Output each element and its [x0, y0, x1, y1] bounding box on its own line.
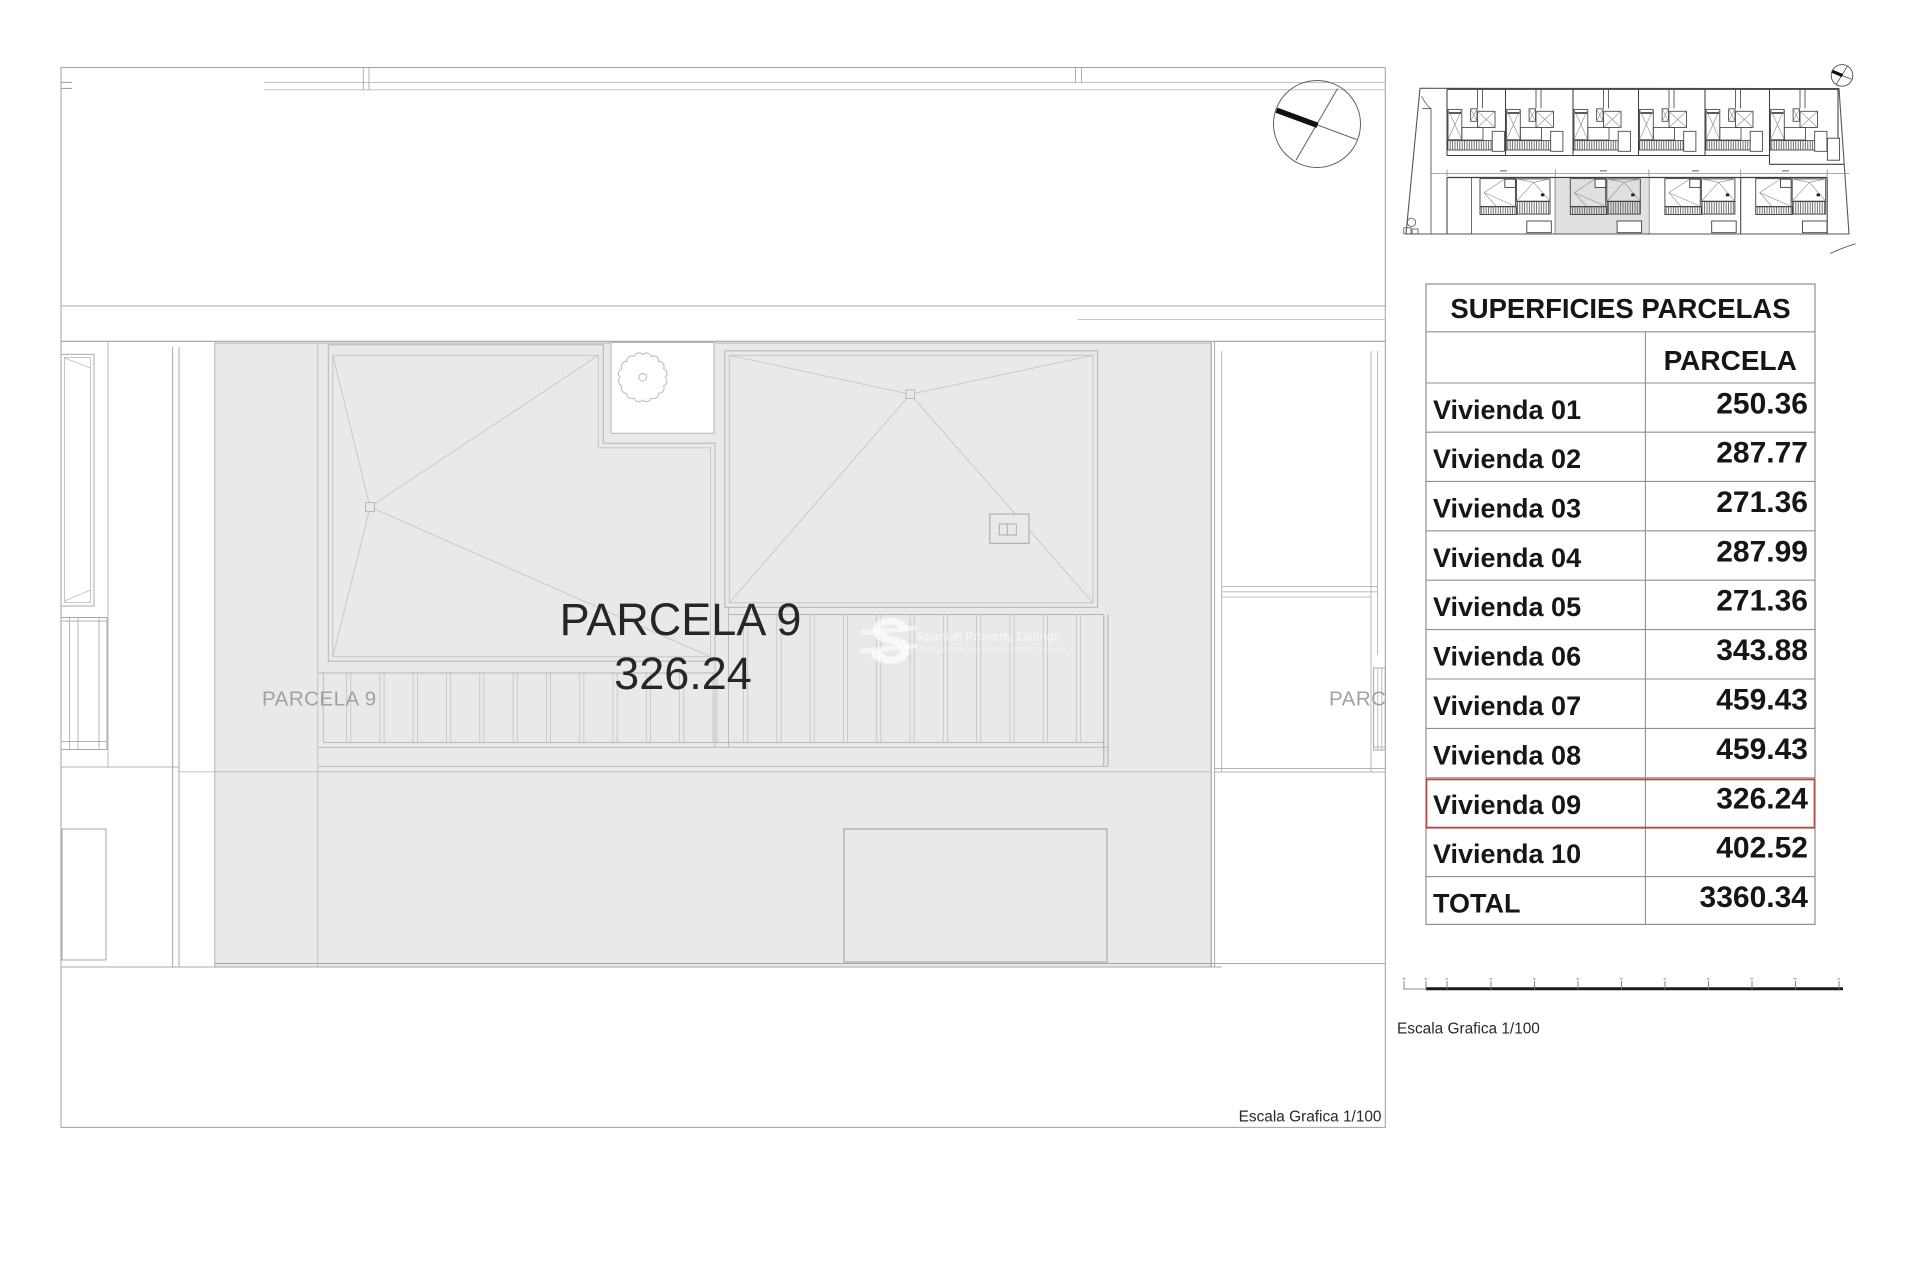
- svg-text:287.99: 287.99: [1716, 535, 1808, 568]
- svg-text:326.24: 326.24: [1716, 782, 1808, 815]
- svg-text:S: S: [869, 605, 912, 677]
- svg-text:326.24: 326.24: [614, 648, 752, 699]
- svg-text:250.36: 250.36: [1716, 388, 1808, 421]
- svg-text:Vivienda 01: Vivienda 01: [1433, 395, 1581, 425]
- svg-text:PARCELA: PARCELA: [1664, 345, 1797, 376]
- svg-text:THE LARGEST SPANISH PROPERTY L: THE LARGEST SPANISH PROPERTY LISTING: [921, 647, 1066, 654]
- svg-text:Escala Grafica 1/100: Escala Grafica 1/100: [1239, 1109, 1382, 1126]
- svg-text:TOTAL: TOTAL: [1433, 889, 1521, 919]
- svg-text:402.52: 402.52: [1716, 832, 1808, 865]
- svg-text:3360.34: 3360.34: [1700, 881, 1809, 914]
- svg-text:Escala Grafica 1/100: Escala Grafica 1/100: [1397, 1021, 1540, 1038]
- svg-text:Vivienda 04: Vivienda 04: [1433, 543, 1581, 573]
- svg-text:271.36: 271.36: [1716, 585, 1808, 618]
- svg-text:287.77: 287.77: [1716, 437, 1808, 470]
- svg-text:Vivienda 06: Vivienda 06: [1433, 642, 1581, 672]
- svg-text:459.43: 459.43: [1716, 733, 1808, 766]
- svg-text:Vivienda 05: Vivienda 05: [1433, 592, 1581, 622]
- svg-text:PARCELA 9: PARCELA 9: [262, 688, 377, 711]
- svg-text:Vivienda 02: Vivienda 02: [1433, 444, 1581, 474]
- svg-text:Vivienda 08: Vivienda 08: [1433, 740, 1581, 770]
- svg-text:PARCELA 9: PARCELA 9: [560, 594, 802, 645]
- svg-text:Vivienda 10: Vivienda 10: [1433, 839, 1581, 869]
- svg-text:343.88: 343.88: [1716, 634, 1808, 667]
- svg-text:Spanish Property Listings: Spanish Property Listings: [917, 630, 1061, 644]
- svg-text:Vivienda 09: Vivienda 09: [1433, 790, 1581, 820]
- svg-text:PARC: PARC: [1329, 688, 1386, 711]
- svg-text:SUPERFICIES PARCELAS: SUPERFICIES PARCELAS: [1450, 293, 1790, 324]
- svg-text:Vivienda 03: Vivienda 03: [1433, 493, 1581, 523]
- svg-text:Vivienda 07: Vivienda 07: [1433, 691, 1581, 721]
- svg-text:271.36: 271.36: [1716, 486, 1808, 519]
- svg-text:459.43: 459.43: [1716, 684, 1808, 717]
